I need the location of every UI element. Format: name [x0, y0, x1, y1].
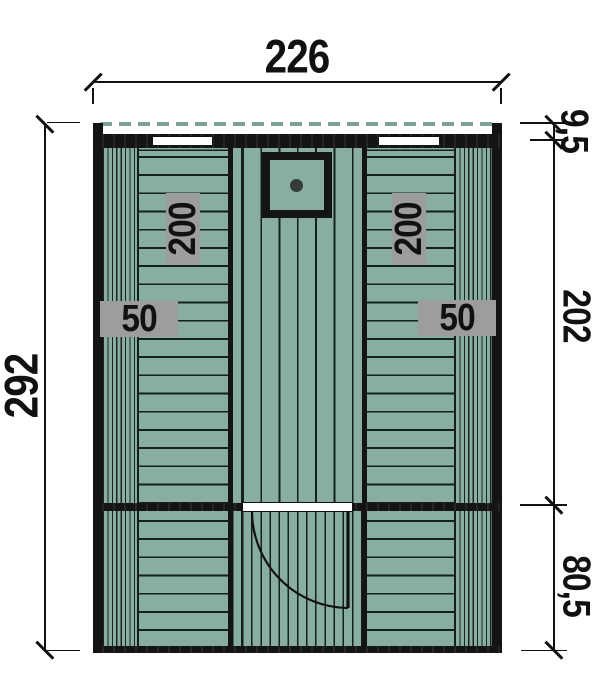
right-bench-depth-label: 50 — [418, 300, 496, 336]
left-bench-depth-label: 50 — [100, 301, 178, 337]
right-bench-length-label: 200 — [392, 193, 426, 265]
floor-plan: 226 292 9,5 202 80,5 — [0, 0, 600, 700]
door-swing — [0, 0, 600, 700]
left-bench-length-label: 200 — [166, 193, 200, 265]
